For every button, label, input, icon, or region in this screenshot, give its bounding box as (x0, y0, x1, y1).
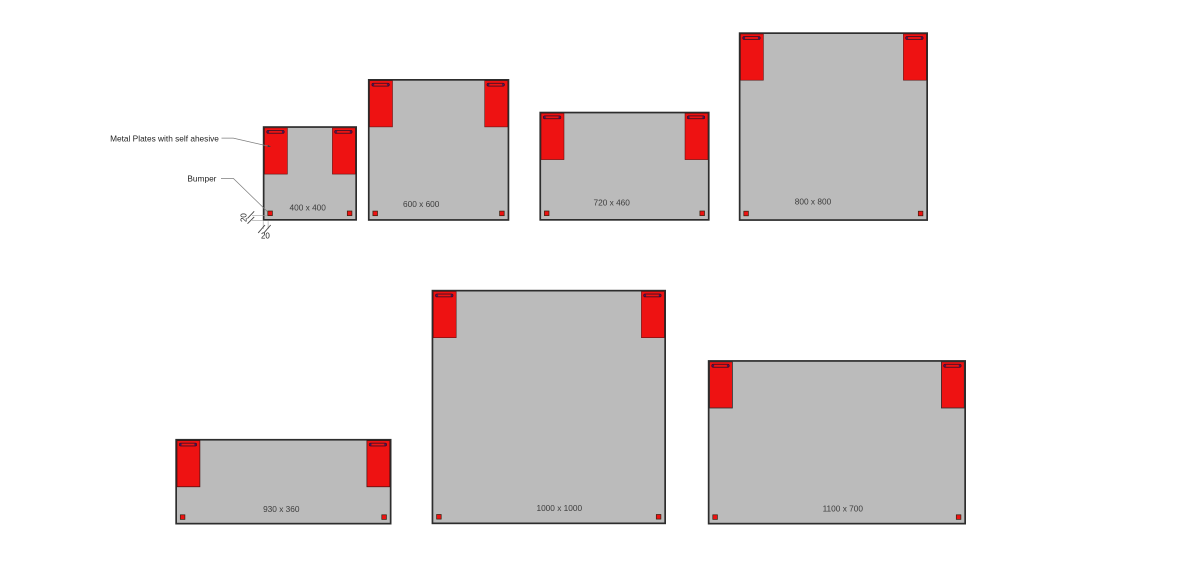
svg-text:20: 20 (240, 213, 249, 222)
svg-text:400 x 400: 400 x 400 (289, 202, 326, 212)
svg-text:20: 20 (261, 232, 270, 241)
svg-text:800 x 800: 800 x 800 (795, 196, 832, 206)
svg-text:600 x 600: 600 x 600 (403, 199, 440, 209)
svg-text:1100 x 700: 1100 x 700 (823, 503, 864, 513)
svg-text:Metal Plates with self ahesive: Metal Plates with self ahesive (110, 133, 219, 143)
svg-text:1000 x 1000: 1000 x 1000 (536, 503, 582, 513)
svg-text:720 x 460: 720 x 460 (593, 197, 630, 207)
svg-text:Bumper: Bumper (187, 174, 216, 184)
svg-text:930 x 360: 930 x 360 (263, 504, 300, 514)
